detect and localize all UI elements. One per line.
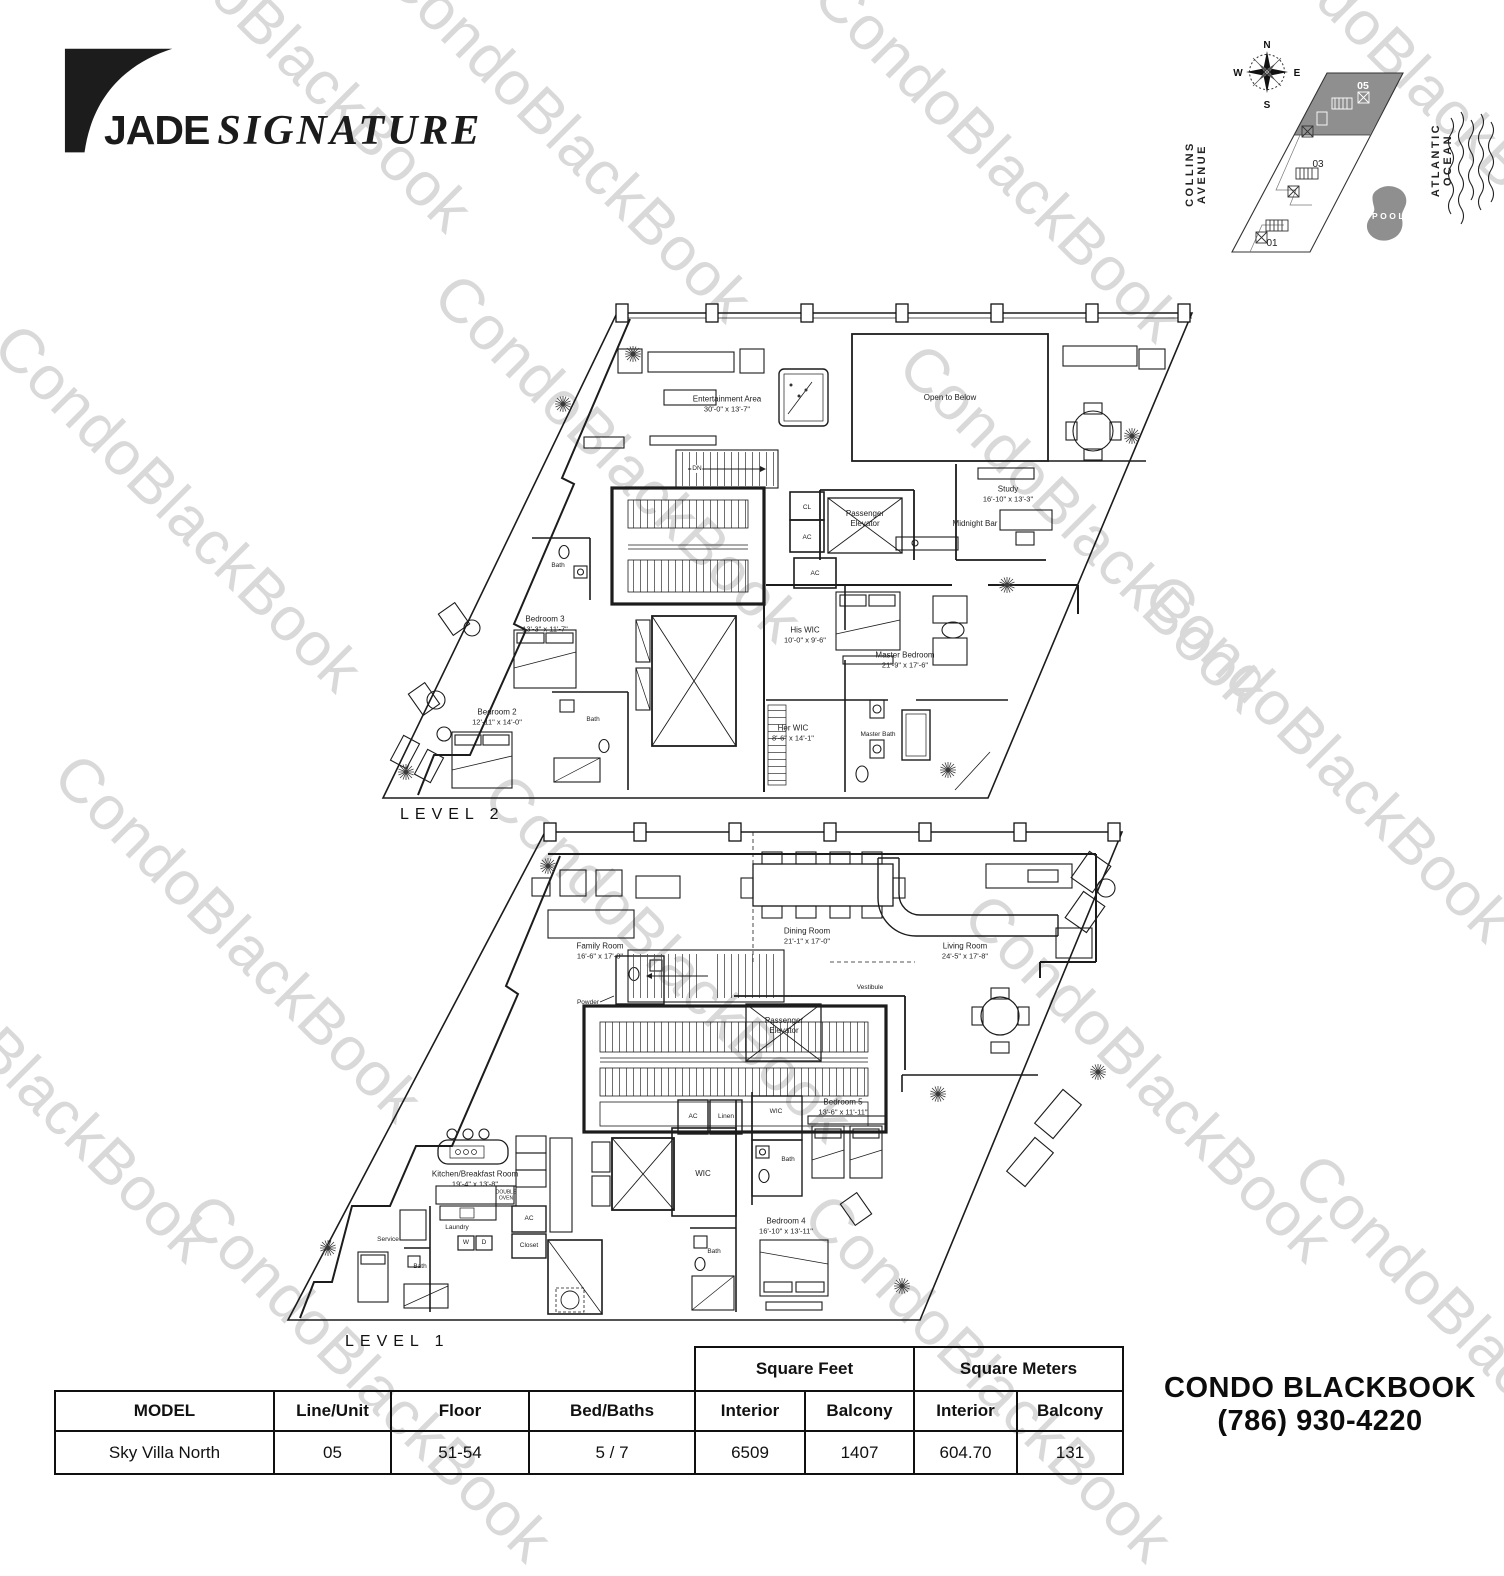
room-label-closet: Closet xyxy=(520,1242,538,1250)
room-label-entertainment: Entertainment Area 30'-0" x 13'-7" xyxy=(693,394,761,413)
group-header-square-feet: Square Feet xyxy=(695,1347,914,1391)
bedroom4-furniture xyxy=(736,1193,872,1312)
room-label-bath: Bath xyxy=(551,562,564,570)
compass-n: N xyxy=(1263,40,1270,51)
room-label-ac: AC xyxy=(524,1215,533,1223)
brand-logo: JADE SIGNATURE xyxy=(64,46,482,157)
room-label-bath: Bath xyxy=(707,1248,720,1256)
room-label-ac: AC xyxy=(802,534,811,542)
room-label-double-oven: DOUBLE OVEN xyxy=(495,1191,517,1202)
room-label-bath: Bath xyxy=(781,1156,794,1164)
midnight-bar-counter xyxy=(896,537,958,550)
pool-shape: POOL xyxy=(1367,186,1406,241)
room-label-dining: Dining Room 21'-1" x 17'-0" xyxy=(784,926,830,945)
upper-terrace-furniture xyxy=(1063,346,1165,460)
plant-icon xyxy=(940,762,956,778)
brand-word-signature: SIGNATURE xyxy=(217,107,482,155)
room-label-washer: W xyxy=(463,1239,469,1247)
bedroom2-furniture xyxy=(408,683,512,788)
room-label-open-to-below: Open to Below xyxy=(924,393,976,403)
bath2-fixtures xyxy=(552,692,628,790)
plant-icon xyxy=(320,1240,336,1256)
service-shaft-l1 xyxy=(550,1138,674,1232)
site-unit-05-label: 05 xyxy=(1357,80,1369,92)
room-label-wic: WIC xyxy=(695,1169,711,1179)
contact-brand: CONDO BLACKBOOK xyxy=(1140,1372,1500,1405)
plant-icon xyxy=(398,764,414,780)
cell-interior-sqm: 604.70 xyxy=(914,1431,1017,1474)
terrace-dining-table xyxy=(972,988,1029,1053)
plant-icon xyxy=(1124,428,1140,444)
room-label-master-bedroom: Master Bedroom 21'-9" x 17'-6" xyxy=(875,650,934,669)
table-header-row: MODEL Line/Unit Floor Bed/Baths Interior… xyxy=(55,1391,1123,1431)
cell-balcony-sqft: 1407 xyxy=(805,1431,914,1474)
waves-icon xyxy=(1449,112,1494,224)
room-label-elevator: Passenger Elevator xyxy=(838,509,892,529)
col-header-floor: Floor xyxy=(391,1391,529,1431)
plant-icon xyxy=(930,1086,946,1102)
cell-interior-sqft: 6509 xyxy=(695,1431,805,1474)
main-stair-hall xyxy=(612,488,764,604)
spec-table: Square Feet Square Meters MODEL Line/Uni… xyxy=(54,1346,1124,1475)
service-shaft xyxy=(636,616,736,746)
room-label-midnight-bar: Midnight Bar xyxy=(948,519,1002,529)
floorplan-graphics: N E S W 05 xyxy=(0,0,1504,1503)
study-room xyxy=(956,464,1052,560)
brand-word-jade: JADE xyxy=(104,107,209,154)
col-header-bed-baths: Bed/Baths xyxy=(529,1391,695,1431)
room-label-linen: Linen xyxy=(718,1113,734,1121)
room-label-service: Service xyxy=(377,1236,399,1244)
room-label-her-wic: Her WIC 8'-6" x 14'-1" xyxy=(772,723,814,742)
collins-avenue-label: COLLINS AVENUE xyxy=(1184,109,1208,239)
compass-s: S xyxy=(1264,100,1271,111)
level2-label: LEVEL 2 xyxy=(400,806,505,824)
room-label-dryer: D xyxy=(482,1239,487,1247)
family-room-furniture xyxy=(532,870,680,938)
site-unit-01-label: 01 xyxy=(1266,238,1278,249)
cell-floor: 51-54 xyxy=(391,1431,529,1474)
col-header-interior-sqft: Interior xyxy=(695,1391,805,1431)
lounge-chairs xyxy=(1007,1089,1082,1186)
col-header-balcony-sqm: Balcony xyxy=(1017,1391,1123,1431)
dining-table xyxy=(741,852,905,918)
pool-label: POOL xyxy=(1372,211,1406,221)
contact-block: CONDO BLACKBOOK (786) 930-4220 xyxy=(1140,1372,1500,1438)
living-room-furniture xyxy=(878,851,1115,958)
plant-icon xyxy=(999,577,1015,593)
cell-line-unit: 05 xyxy=(274,1431,391,1474)
room-label-family: Family Room 16'-6" x 17'-8" xyxy=(576,941,623,960)
room-label-bath: Bath xyxy=(413,1263,426,1271)
plant-icon xyxy=(1090,1064,1106,1080)
service-room xyxy=(358,1206,448,1312)
plant-icon xyxy=(540,858,556,874)
cell-model: Sky Villa North xyxy=(55,1431,274,1474)
compass-icon: N E S W xyxy=(1233,40,1300,111)
room-label-his-wic: His WIC 10'-0" x 9'-6" xyxy=(784,625,826,644)
room-label-bedroom4: Bedroom 4 16'-10" x 13'-11" xyxy=(759,1216,813,1235)
room-label-laundry: Laundry xyxy=(445,1224,469,1232)
compass-e: E xyxy=(1294,68,1301,79)
pool-table xyxy=(779,369,828,426)
mech-room xyxy=(548,1240,602,1314)
room-label-bedroom2: Bedroom 2 12'-11" x 14'-0" xyxy=(472,707,522,726)
site-unit-03-label: 03 xyxy=(1312,159,1324,170)
col-header-line-unit: Line/Unit xyxy=(274,1391,391,1431)
col-header-interior-sqm: Interior xyxy=(914,1391,1017,1431)
contact-phone: (786) 930-4220 xyxy=(1140,1405,1500,1438)
level1-plan xyxy=(288,823,1122,1320)
room-label-kitchen: Kitchen/Breakfast Room 19'-4" x 13'-8" xyxy=(432,1169,518,1188)
cell-balcony-sqm: 131 xyxy=(1017,1431,1123,1474)
room-label-powder: Powder xyxy=(577,999,599,1007)
plant-icon xyxy=(894,1278,910,1294)
group-header-square-meters: Square Meters xyxy=(914,1347,1123,1391)
room-label-master-bath: Master Bath xyxy=(860,731,895,739)
cell-bed-baths: 5 / 7 xyxy=(529,1431,695,1474)
table-row: Sky Villa North 05 51-54 5 / 7 6509 1407… xyxy=(55,1431,1123,1474)
plant-icon xyxy=(555,396,571,412)
room-label-ac: AC xyxy=(688,1113,697,1121)
room-label-bedroom3: Bedroom 3 13'-3" x 11'-7" xyxy=(522,614,568,633)
room-label-bedroom5: Bedroom 5 13'-6" x 11'-11" xyxy=(818,1097,867,1116)
room-label-bath: Bath xyxy=(586,716,599,724)
atlantic-ocean-label: ATLANTIC OCEAN xyxy=(1430,95,1454,225)
room-label-cl: CL xyxy=(803,504,811,512)
compass-w: W xyxy=(1233,68,1243,79)
col-header-model: MODEL xyxy=(55,1391,274,1431)
col-header-balcony-sqft: Balcony xyxy=(805,1391,914,1431)
room-label-dn: DN xyxy=(691,465,702,473)
bath4-fixtures xyxy=(690,1228,736,1310)
room-label-wic: WIC xyxy=(770,1108,783,1116)
room-label-vestibule: Vestibule xyxy=(857,984,883,992)
room-label-ac: AC xyxy=(810,570,819,578)
plant-icon xyxy=(625,346,641,362)
table-group-header-row: Square Feet Square Meters xyxy=(55,1347,1123,1391)
upper-stair-run xyxy=(628,950,784,1002)
room-label-study: Study 16'-10" x 13'-3" xyxy=(983,484,1033,503)
room-label-elevator: Passenger Elevator xyxy=(757,1016,811,1036)
master-bath-fixtures xyxy=(856,700,990,790)
room-label-living: Living Room 24'-5" x 17'-8" xyxy=(942,941,988,960)
